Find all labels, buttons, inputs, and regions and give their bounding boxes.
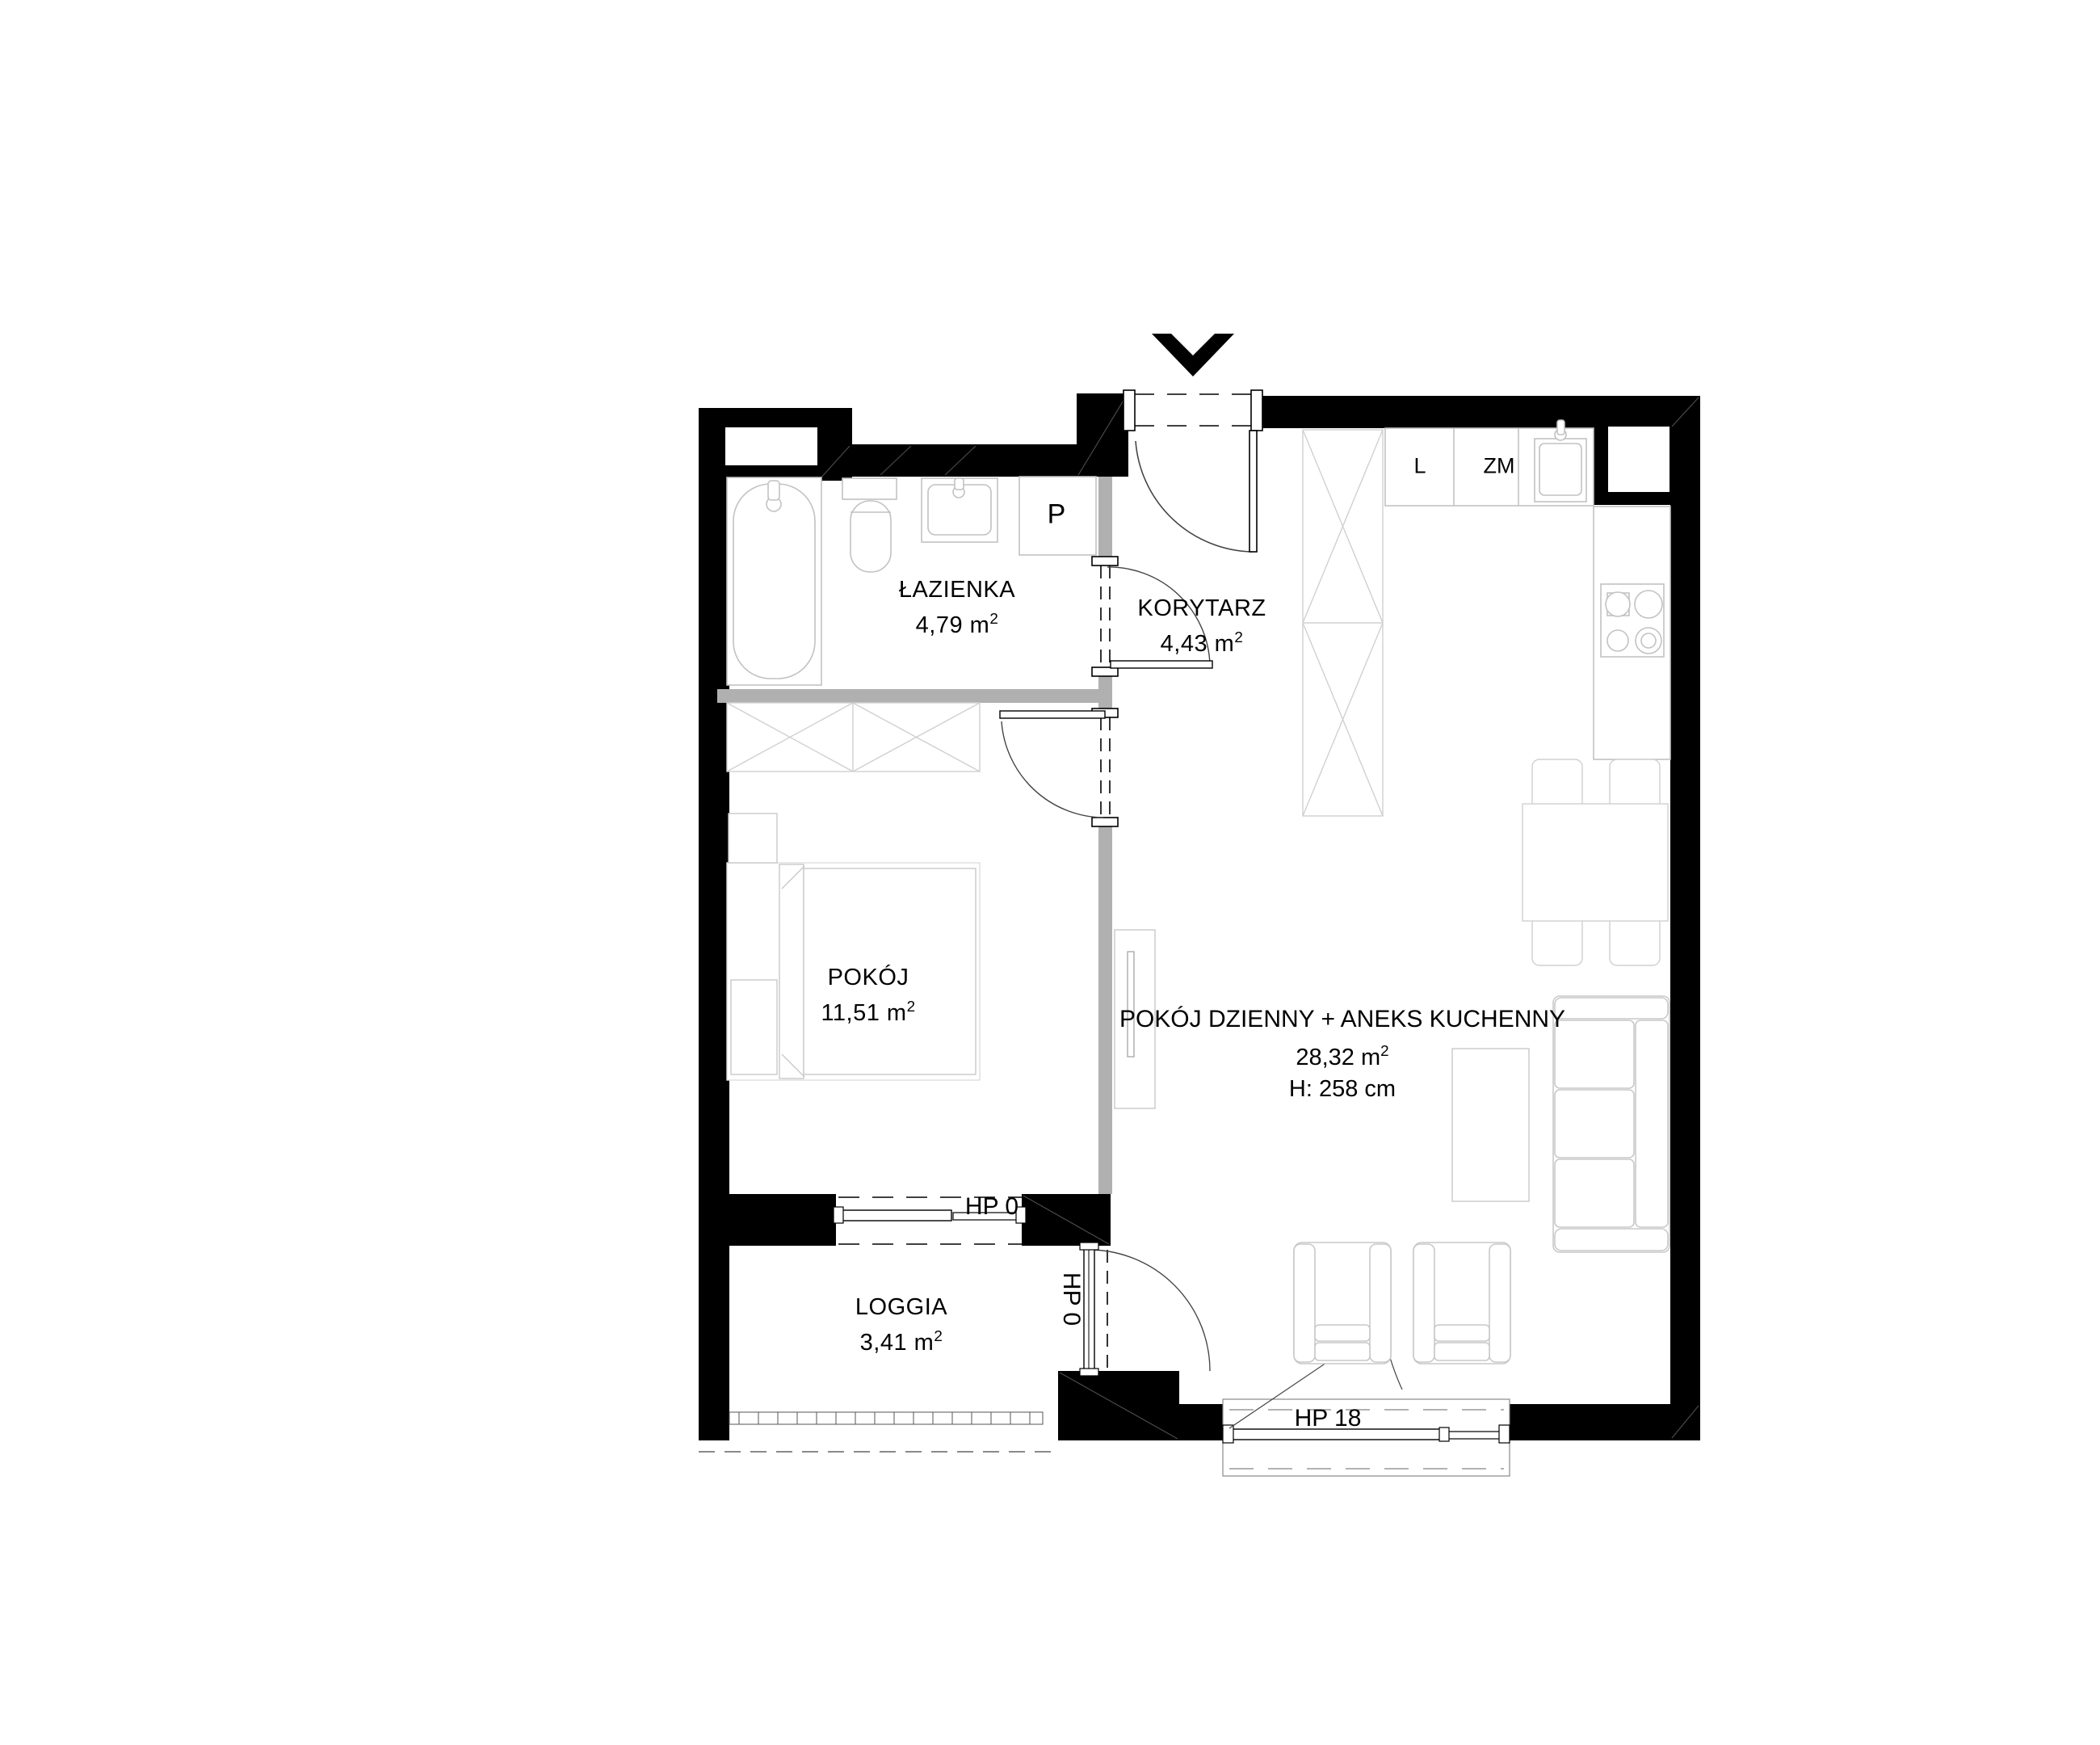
window-label-hp0-loggia-door: HP 0: [1057, 1272, 1085, 1326]
armchair-left: [1294, 1243, 1391, 1364]
room-label-bathroom: ŁAZIENKA 4,79 m2: [899, 575, 1015, 640]
bathroom-sink: [922, 478, 997, 542]
stove: [1601, 584, 1664, 657]
dining-set: [1522, 759, 1668, 965]
floorplan-page: { "rooms": { "lazienka": {"name": "ŁAZIE…: [0, 0, 2100, 1745]
window-label-hp0-bedroom: HP 0: [965, 1193, 1018, 1221]
bathtub: [727, 477, 821, 685]
entrance-arrow-icon: [1152, 334, 1234, 376]
corridor-wardrobe: [1303, 430, 1383, 816]
room-label-bedroom: POKÓJ 11,51 m2: [821, 963, 915, 1028]
window-label-hp18: HP 18: [1295, 1405, 1362, 1432]
entrance-door: [1136, 431, 1257, 552]
sofa: [1553, 996, 1669, 1252]
toilet: [842, 478, 897, 572]
loggia-door: [1080, 1243, 1210, 1376]
washing-machine-label: P: [1048, 499, 1066, 531]
dishwasher-label: ZM: [1484, 454, 1515, 479]
loggia-railing: [729, 1412, 1043, 1424]
armchair-right: [1413, 1243, 1510, 1364]
fridge-label: L: [1413, 454, 1426, 479]
room-label-loggia: LOGGIA 3,41 m2: [855, 1293, 947, 1357]
room-label-livingroom: POKÓJ DZIENNY + ANEKS KUCHENNY 28,32 m2 …: [1119, 1003, 1565, 1105]
floor-plan-drawing: [0, 0, 2100, 1745]
bedroom-wardrobe: [727, 703, 980, 772]
room-label-corridor: KORYTARZ 4,43 m2: [1137, 594, 1266, 658]
bedroom-door: [1000, 711, 1105, 818]
